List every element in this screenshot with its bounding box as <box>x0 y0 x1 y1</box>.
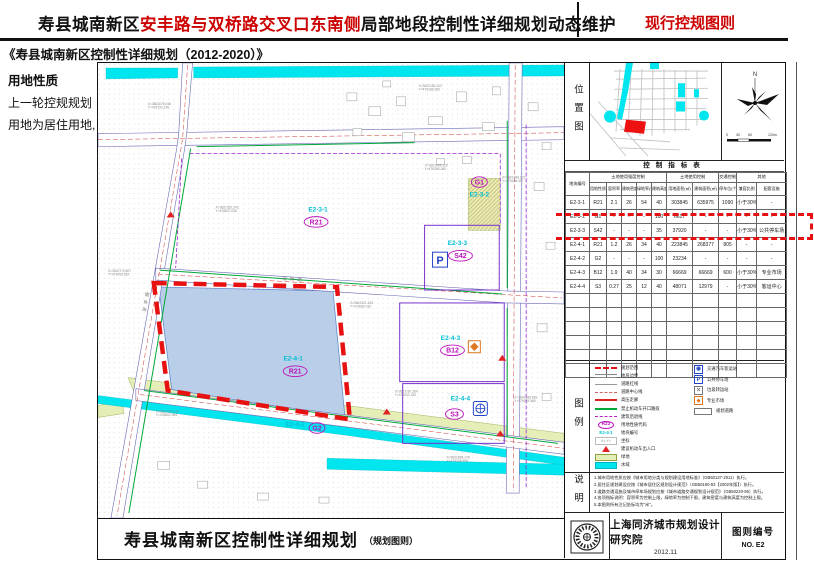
svg-text:X=3602075.048Y=478792.376: X=3602075.048Y=478792.376 <box>148 102 171 110</box>
svg-text:X=3601665.178Y=479238.998: X=3601665.178Y=479238.998 <box>446 455 469 463</box>
plan-sheet: P 安丰路 双桥路 X=3602075.048Y=478792.376X=360… <box>97 62 786 560</box>
legend-item-label: 用地性质代码 <box>621 422 647 428</box>
coord-mark-icon: X= Y= <box>595 437 617 445</box>
table-empty-row <box>566 336 787 350</box>
svg-text:X=3602160.103Y=479163.260: X=3602160.103Y=479163.260 <box>419 84 442 92</box>
legend-item-label: 地块编号 <box>621 430 638 436</box>
svg-text:S42: S42 <box>454 253 467 260</box>
legend-item: 交通汽车客运站 <box>694 364 784 375</box>
table-column-header: 停车位(个) <box>719 183 737 196</box>
double-line-icon <box>595 374 617 378</box>
green-fill-icon <box>595 454 617 461</box>
thin-line-icon <box>595 384 617 385</box>
table-row: E2-4-3B121.94034306666966669600小于30%专业市场 <box>566 266 787 280</box>
legend-item: 规划范围 <box>595 364 691 372</box>
svg-text:120m: 120m <box>768 133 777 137</box>
table-row: E2-3-2G1---1006617---- <box>566 210 787 224</box>
legend-item: R22用地性质代码 <box>595 421 691 429</box>
legend-item-label: 绿地 <box>621 454 630 460</box>
header-divider <box>577 2 579 37</box>
info-panel: 位置图 <box>564 63 784 558</box>
svg-text:E2-3-3: E2-3-3 <box>448 240 468 247</box>
table-column-header: 绿地率(%) <box>637 183 652 196</box>
svg-text:S3: S3 <box>450 411 459 418</box>
sidebar-heading: 用地性质 <box>8 70 96 92</box>
plan-map-area: P 安丰路 双桥路 X=3602075.048Y=478792.376X=360… <box>98 63 566 558</box>
bus-station-icon <box>694 365 703 374</box>
legend-item: 垃圾转运站 <box>694 385 784 396</box>
map-title-bar: 寿县城南新区控制性详细规划 （规划图则） <box>98 518 566 558</box>
svg-text:E2-4-4: E2-4-4 <box>451 396 471 403</box>
legend-body: 规划范围地块边界道路红线道路中心线高压走廊禁止机动车开口路段建筑后退线R22用地… <box>590 361 784 472</box>
north-label: N <box>753 72 757 78</box>
legend-item-label: 地块边界 <box>621 373 638 379</box>
compass-cell: N 0 30 <box>722 63 784 160</box>
legend-item: P公共停车场 <box>694 375 784 386</box>
zone-code-icon: R22 <box>598 421 614 429</box>
svg-text:0: 0 <box>726 133 728 137</box>
legend-section-label: 图例 <box>565 361 590 472</box>
sheet-number-label: 图则编号 <box>732 524 774 538</box>
legend-item-label: 道路红线 <box>621 381 638 387</box>
svg-text:R21: R21 <box>289 369 302 376</box>
market-icon <box>468 341 480 353</box>
table-group-header: 土地使用控制 <box>667 173 719 183</box>
page-title: 寿县城南新区安丰路与双桥路交叉口东南侧局部地段控制性详细规划动态维护 <box>38 11 616 35</box>
svg-text:X=3601944.120Y=479283.260: X=3601944.120Y=479283.260 <box>425 164 448 172</box>
sanitation-icon <box>694 386 703 395</box>
title-block: 上海同济城市规划设计研究院 2012.11 图则编号 NO. E2 <box>565 513 784 560</box>
table-group-header: 土地使用强度控制 <box>590 173 667 183</box>
institute-cell: 上海同济城市规划设计研究院 2012.11 <box>610 513 722 560</box>
table-row: E2-4-2G2---10023234---- <box>566 252 787 266</box>
legend-item: 地块边界 <box>595 372 691 380</box>
svg-text:X=3601948.873Y=479486.457: X=3601948.873Y=479486.457 <box>502 175 525 183</box>
title-part1: 寿县城南新区 <box>38 16 140 34</box>
legend-item: 建议机动车出入口 <box>595 445 691 453</box>
svg-text:X=3601921.154Y=479065.410: X=3601921.154Y=479065.410 <box>350 301 373 309</box>
svg-text:X=3601787.364Y=479042.150: X=3601787.364Y=479042.150 <box>395 390 418 398</box>
svg-text:E2-3-2: E2-3-2 <box>470 191 490 198</box>
sheet-number-cell: 图则编号 NO. E2 <box>722 513 784 560</box>
note-line: 2.居住区规划建设应按《城市居住区规划设计规范》（GB50180-93【2002… <box>594 482 780 489</box>
svg-text:G1: G1 <box>475 179 484 186</box>
location-section-label: 位置图 <box>565 63 590 160</box>
legend-item-label: 公共停车场 <box>707 377 728 383</box>
table-empty-row <box>566 294 787 308</box>
sheet-number: NO. E2 <box>742 542 765 549</box>
legend-item: 绿地 <box>595 453 691 461</box>
empty-rect-icon <box>694 408 712 415</box>
legend-item: 高压走廊 <box>595 396 691 404</box>
legend-item-label: 交通汽车客运站 <box>707 366 737 372</box>
table-column-header: 兼容比例 <box>737 183 757 196</box>
parcel-code-icon: E2-4-1 <box>595 429 617 436</box>
svg-text:P: P <box>436 255 443 267</box>
notes-section-label: 说明 <box>565 473 590 512</box>
institute-name: 上海同济城市规划设计研究院 <box>610 517 721 547</box>
table-column-header: 用地性质 <box>590 183 607 196</box>
table-column-header: 配套设施 <box>757 183 787 196</box>
legend-section: 图例 规划范围地块边界道路红线道路中心线高压走廊禁止机动车开口路段建筑后退线R2… <box>565 361 784 473</box>
svg-text:X=3601952.243Y=478827.036: X=3601952.243Y=478827.036 <box>216 205 239 213</box>
svg-text:E2-4-1: E2-4-1 <box>283 356 303 363</box>
table-group-header: 地块编号 <box>566 173 590 196</box>
bus-terminal-icon <box>473 402 487 416</box>
legend-item: X= Y=坐标 <box>595 437 691 445</box>
legend-item: 规划道路 <box>694 406 784 417</box>
seal-icon <box>570 520 604 554</box>
sidebar-annotation: 用地性质 上一轮控规规划 用地为居住用地, <box>8 70 96 136</box>
red-line-icon <box>595 399 617 401</box>
center-line-icon <box>595 392 617 393</box>
red-triangle-icon <box>595 445 617 452</box>
page-edge-line <box>796 62 797 560</box>
legend-item-label: 禁止机动车开口路段 <box>621 406 660 412</box>
table-column-header: 建筑密度(%) <box>622 183 637 196</box>
table-group-header: 交通控制 <box>719 173 737 183</box>
note-line: 1.城市用地性质应按《城市用地分类与规划建设用地标准》（GB50137-2011… <box>594 475 780 482</box>
sidebar-line2: 用地为居住用地, <box>8 114 96 136</box>
notes-section: 说明 1.城市用地性质应按《城市用地分类与规划建设用地标准》（GB50137-2… <box>565 473 784 513</box>
note-line: 5.本图则所有注记坐标均为"米"。 <box>594 502 780 509</box>
legend-item-label: 建议机动车出入口 <box>621 446 655 452</box>
legend-item: E2-4-1地块编号 <box>595 429 691 437</box>
control-indicators-section: 控制指标表 地块编号土地使用强度控制土地使用控制交通控制其他用地性质容积率建筑密… <box>565 161 784 361</box>
legend-item-label: 规划道路 <box>716 408 733 414</box>
svg-text:E2-3-1: E2-3-1 <box>308 206 328 213</box>
legend-item: 专业市场 <box>694 396 784 407</box>
cyan-fill-icon <box>595 462 617 469</box>
control-indicators-table: 地块编号土地使用强度控制土地使用控制交通控制其他用地性质容积率建筑密度(%)绿地… <box>565 172 787 378</box>
plan-map: P 安丰路 双桥路 X=3602075.048Y=478792.376X=360… <box>98 63 564 518</box>
parking-icon: P <box>433 252 448 267</box>
location-map <box>590 63 722 160</box>
magenta-dashed-line-icon <box>595 416 617 417</box>
legend-item: 道路红线 <box>595 380 691 388</box>
table-title: 控制指标表 <box>565 161 784 172</box>
table-column-header: 容积率 <box>607 183 622 196</box>
svg-text:E2-4-3: E2-4-3 <box>441 335 461 342</box>
legend-item: 禁止机动车开口路段 <box>595 404 691 412</box>
plan-sheet-page: 寿县城南新区安丰路与双桥路交叉口东南侧局部地段控制性详细规划动态维护 现行控规图… <box>0 0 814 579</box>
legend-item-label: 水域 <box>621 462 630 468</box>
plan-date: 2012.11 <box>654 549 677 556</box>
parking-icon: P <box>694 375 703 384</box>
svg-text:X=3601770.807Y=478705.552: X=3601770.807Y=478705.552 <box>108 269 131 277</box>
green-line-icon <box>595 408 617 410</box>
svg-text:60: 60 <box>748 133 752 137</box>
svg-text:30: 30 <box>736 133 740 137</box>
legend-item-label: 高压走廊 <box>621 397 638 403</box>
location-site-marker <box>624 120 646 134</box>
map-title: 寿县城南新区控制性详细规划 <box>124 526 358 551</box>
note-line: 4.各项指标说明：容积率为控制上限，绿地率为控制下限，建筑密度与建筑高度为控制上… <box>594 495 780 502</box>
svg-text:G2: G2 <box>312 425 321 432</box>
legend-item: 建筑后退线 <box>595 413 691 421</box>
location-section: 位置图 <box>565 63 784 161</box>
current-plan-badge: 现行控规图则 <box>615 12 765 33</box>
title-part2-highlight: 安丰路与双桥路交叉口东南侧 <box>140 16 361 34</box>
legend-item: 水域 <box>595 461 691 469</box>
table-empty-row <box>566 308 787 322</box>
market-icon <box>694 396 703 405</box>
scale-bar: 0 30 60 120m <box>726 133 777 142</box>
table-empty-row <box>566 322 787 336</box>
legend-item-label: 垃圾转运站 <box>707 387 728 393</box>
header-rule <box>0 38 788 41</box>
svg-text:B12: B12 <box>446 348 459 355</box>
table-column-header: 建筑高度(m) <box>652 183 667 196</box>
svg-text:X=3601688.581Y=479078.985: X=3601688.581Y=479078.985 <box>514 396 537 404</box>
table-row: E2-3-1R212.12654403038456359751090小于30%- <box>566 196 787 210</box>
svg-text:X=3601707.140Y=478602.964: X=3601707.140Y=478602.964 <box>156 409 179 417</box>
table-row: E2-3-3S42---3537920--小于30%公共停车场 <box>566 224 787 238</box>
svg-text:E2-4-2: E2-4-2 <box>285 421 305 428</box>
sidebar-line1: 上一轮控规规划 <box>8 92 96 114</box>
table-column-header: 用地面积(㎡) <box>667 183 693 196</box>
table-column-header: 建筑面积(㎡) <box>693 183 719 196</box>
legend-item-label: 道路中心线 <box>621 389 642 395</box>
legend-item-label: 规划范围 <box>621 365 638 371</box>
legend-item-label: 专业市场 <box>707 398 724 404</box>
table-row: E2-4-1R211.2263440223845268377805-- <box>566 238 787 252</box>
note-line: 3.道路交通设施及城市停车场规划应按《城市道路交通规划设计规范》（GB50220… <box>594 489 780 496</box>
table-row: E2-4-4S30.272512404807112979-小于30%客运中心 <box>566 280 787 294</box>
table-group-header: 其他 <box>737 173 787 183</box>
compass-rose-icon <box>737 87 779 121</box>
legend-item-label: 建筑后退线 <box>621 414 642 420</box>
legend-item: 道路中心线 <box>595 388 691 396</box>
notes-body: 1.城市用地性质应按《城市用地分类与规划建设用地标准》（GB50137-2011… <box>590 473 784 512</box>
institute-logo <box>565 513 610 560</box>
legend-item-label: 坐标 <box>621 438 630 444</box>
svg-text:R21: R21 <box>310 219 323 226</box>
red-dashed-line-icon <box>595 367 617 369</box>
map-title-note: （规划图则） <box>364 534 418 547</box>
plan-subtitle: 《寿县城南新区控制性详细规划（2012-2020）》 <box>3 44 269 63</box>
